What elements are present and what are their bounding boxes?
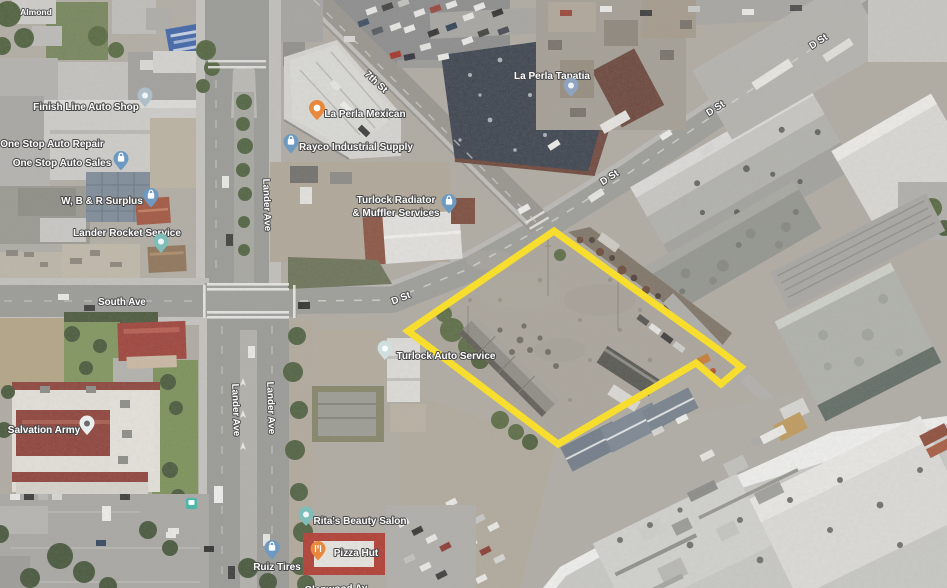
svg-text:Ruiz Tires: Ruiz Tires — [253, 562, 301, 573]
svg-text:Salvation Army: Salvation Army — [8, 425, 81, 436]
svg-text:Pizza Hut: Pizza Hut — [334, 548, 379, 559]
svg-text:La Perla Mexican: La Perla Mexican — [324, 109, 405, 120]
svg-text:La Perla Tapatia: La Perla Tapatia — [514, 71, 590, 82]
svg-text:One Stop Auto Repair: One Stop Auto Repair — [0, 139, 104, 150]
svg-text:Rita's Beauty Salon: Rita's Beauty Salon — [314, 516, 407, 527]
svg-text:W, B & R Surplus: W, B & R Surplus — [61, 196, 143, 207]
svg-text:Lander Ave: Lander Ave — [264, 381, 277, 435]
svg-text:Almond: Almond — [20, 7, 52, 17]
svg-text:Rayco Industrial Supply: Rayco Industrial Supply — [299, 142, 413, 153]
svg-text:Turlock Radiator: Turlock Radiator — [357, 195, 436, 206]
svg-text:Lander Ave: Lander Ave — [260, 178, 273, 232]
svg-text:Finish Line Auto Shop: Finish Line Auto Shop — [33, 102, 139, 113]
svg-text:South Ave: South Ave — [98, 297, 146, 308]
svg-text:Lander Ave: Lander Ave — [229, 383, 242, 437]
svg-text:One Stop Auto Sales: One Stop Auto Sales — [13, 158, 112, 169]
svg-text:& Muffler Services: & Muffler Services — [352, 208, 440, 219]
svg-text:Turlock Auto Service: Turlock Auto Service — [397, 351, 496, 362]
